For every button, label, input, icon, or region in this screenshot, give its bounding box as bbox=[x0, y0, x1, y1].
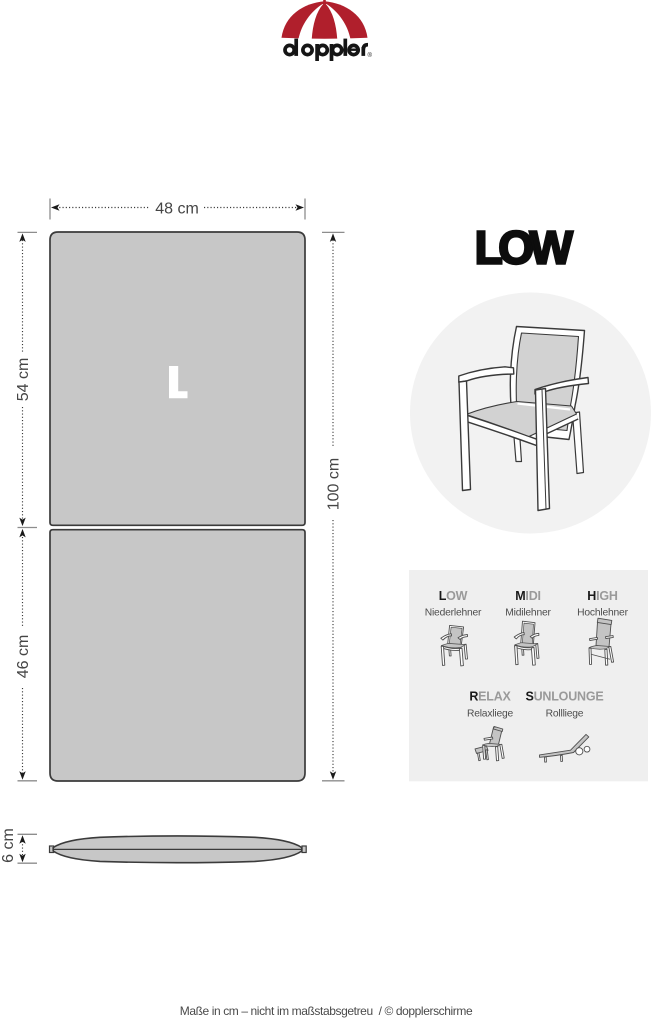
svg-text:MIDI: MIDI bbox=[515, 589, 541, 603]
svg-text:Midilehner: Midilehner bbox=[505, 607, 551, 618]
svg-text:LOW: LOW bbox=[439, 589, 468, 603]
svg-text:Hochlehner: Hochlehner bbox=[577, 607, 628, 618]
svg-text:Niederlehner: Niederlehner bbox=[425, 607, 482, 618]
svg-text:Maße in cm – nicht im maßstabs: Maße in cm – nicht im maßstabsgetreu / ©… bbox=[180, 1004, 473, 1018]
svg-text:Rollliege: Rollliege bbox=[546, 708, 584, 719]
svg-text:LOW: LOW bbox=[475, 222, 574, 274]
svg-text:SUNLOUNGE: SUNLOUNGE bbox=[525, 689, 603, 703]
svg-text:48 cm: 48 cm bbox=[155, 200, 199, 217]
svg-text:®: ® bbox=[368, 52, 373, 59]
svg-text:6 cm: 6 cm bbox=[0, 828, 17, 863]
svg-text:46 cm: 46 cm bbox=[15, 635, 32, 679]
svg-text:RELAX: RELAX bbox=[469, 689, 511, 703]
svg-text:54 cm: 54 cm bbox=[15, 358, 32, 402]
svg-text:100 cm: 100 cm bbox=[326, 458, 343, 510]
svg-text:HIGH: HIGH bbox=[587, 589, 618, 603]
svg-text:Relaxliege: Relaxliege bbox=[467, 708, 514, 719]
